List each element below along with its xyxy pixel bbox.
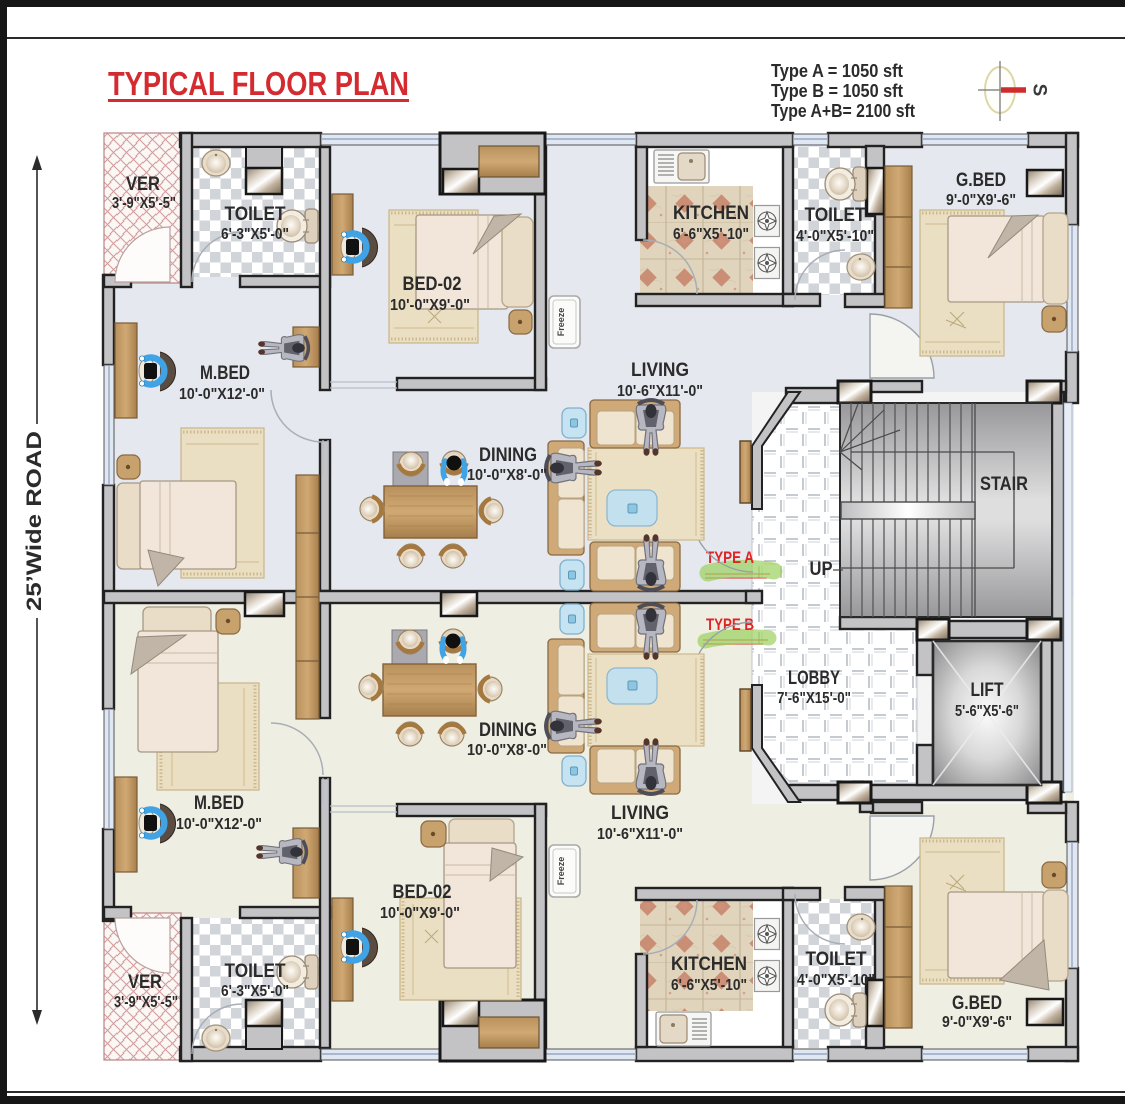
svg-text:LIFT: LIFT: [971, 680, 1004, 701]
svg-text:25’Wide ROAD: 25’Wide ROAD: [23, 431, 46, 611]
svg-text:9'-0"X9'-6": 9'-0"X9'-6": [942, 1014, 1012, 1031]
svg-text:VER: VER: [126, 174, 160, 195]
svg-text:6'-6"X5'-10": 6'-6"X5'-10": [673, 226, 749, 243]
svg-text:Freeze: Freeze: [556, 857, 566, 886]
svg-text:3'-9"X5'-5": 3'-9"X5'-5": [112, 195, 176, 212]
svg-text:4'-0"X5'-10": 4'-0"X5'-10": [796, 228, 874, 245]
svg-text:LOBBY: LOBBY: [788, 668, 840, 689]
svg-text:DINING: DINING: [479, 445, 537, 466]
svg-text:DINING: DINING: [479, 720, 537, 741]
svg-text:10'-0"X12'-0": 10'-0"X12'-0": [179, 386, 265, 403]
svg-text:TOILET: TOILET: [805, 205, 866, 226]
svg-text:BED-02: BED-02: [393, 882, 452, 903]
svg-text:TOILET: TOILET: [225, 961, 286, 982]
svg-text:6'-3"X5'-0": 6'-3"X5'-0": [221, 983, 289, 1000]
svg-text:G.BED: G.BED: [956, 170, 1006, 191]
svg-text:M.BED: M.BED: [200, 363, 250, 384]
svg-text:Type A+B= 2100 sft: Type A+B= 2100 sft: [771, 101, 915, 121]
svg-text:4'-0"X5'-10": 4'-0"X5'-10": [797, 972, 875, 989]
svg-text:KITCHEN: KITCHEN: [673, 203, 749, 224]
svg-text:TYPICAL FLOOR PLAN: TYPICAL FLOOR PLAN: [108, 65, 409, 102]
svg-text:10'-6"X11'-0": 10'-6"X11'-0": [597, 826, 683, 843]
svg-text:UP: UP: [810, 559, 833, 580]
svg-text:Type A = 1050 sft: Type A = 1050 sft: [771, 61, 903, 81]
svg-text:Type B = 1050 sft: Type B = 1050 sft: [771, 81, 903, 101]
svg-text:7'-6"X15'-0": 7'-6"X15'-0": [777, 690, 851, 707]
svg-text:Freeze: Freeze: [556, 308, 566, 337]
svg-text:TOILET: TOILET: [806, 949, 867, 970]
svg-text:KITCHEN: KITCHEN: [671, 954, 747, 975]
svg-text:S: S: [1029, 84, 1050, 97]
svg-text:VER: VER: [128, 972, 162, 993]
svg-text:10'-0"X9'-0": 10'-0"X9'-0": [390, 297, 470, 314]
svg-text:STAIR: STAIR: [980, 474, 1028, 495]
svg-text:10'-6"X11'-0": 10'-6"X11'-0": [617, 383, 703, 400]
svg-text:6'-6"X5'-10": 6'-6"X5'-10": [671, 977, 747, 994]
svg-text:M.BED: M.BED: [194, 793, 244, 814]
svg-text:LIVING: LIVING: [631, 360, 689, 381]
svg-text:10'-0"X9'-0": 10'-0"X9'-0": [380, 905, 460, 922]
svg-text:LIVING: LIVING: [611, 803, 669, 824]
svg-text:BED-02: BED-02: [403, 274, 462, 295]
svg-text:G.BED: G.BED: [952, 993, 1002, 1014]
svg-text:6'-3"X5'-0": 6'-3"X5'-0": [221, 226, 289, 243]
svg-text:TYPE B: TYPE B: [706, 616, 754, 634]
svg-text:5'-6"X5'-6": 5'-6"X5'-6": [955, 703, 1019, 720]
svg-text:10'-0"X12'-0": 10'-0"X12'-0": [176, 816, 262, 833]
svg-text:TOILET: TOILET: [225, 204, 286, 225]
svg-text:10'-0"X8'-0": 10'-0"X8'-0": [467, 742, 547, 759]
svg-text:9'-0"X9'-6": 9'-0"X9'-6": [946, 192, 1016, 209]
svg-text:10'-0"X8'-0": 10'-0"X8'-0": [467, 467, 547, 484]
svg-text:3'-9"X5'-5": 3'-9"X5'-5": [114, 994, 178, 1011]
